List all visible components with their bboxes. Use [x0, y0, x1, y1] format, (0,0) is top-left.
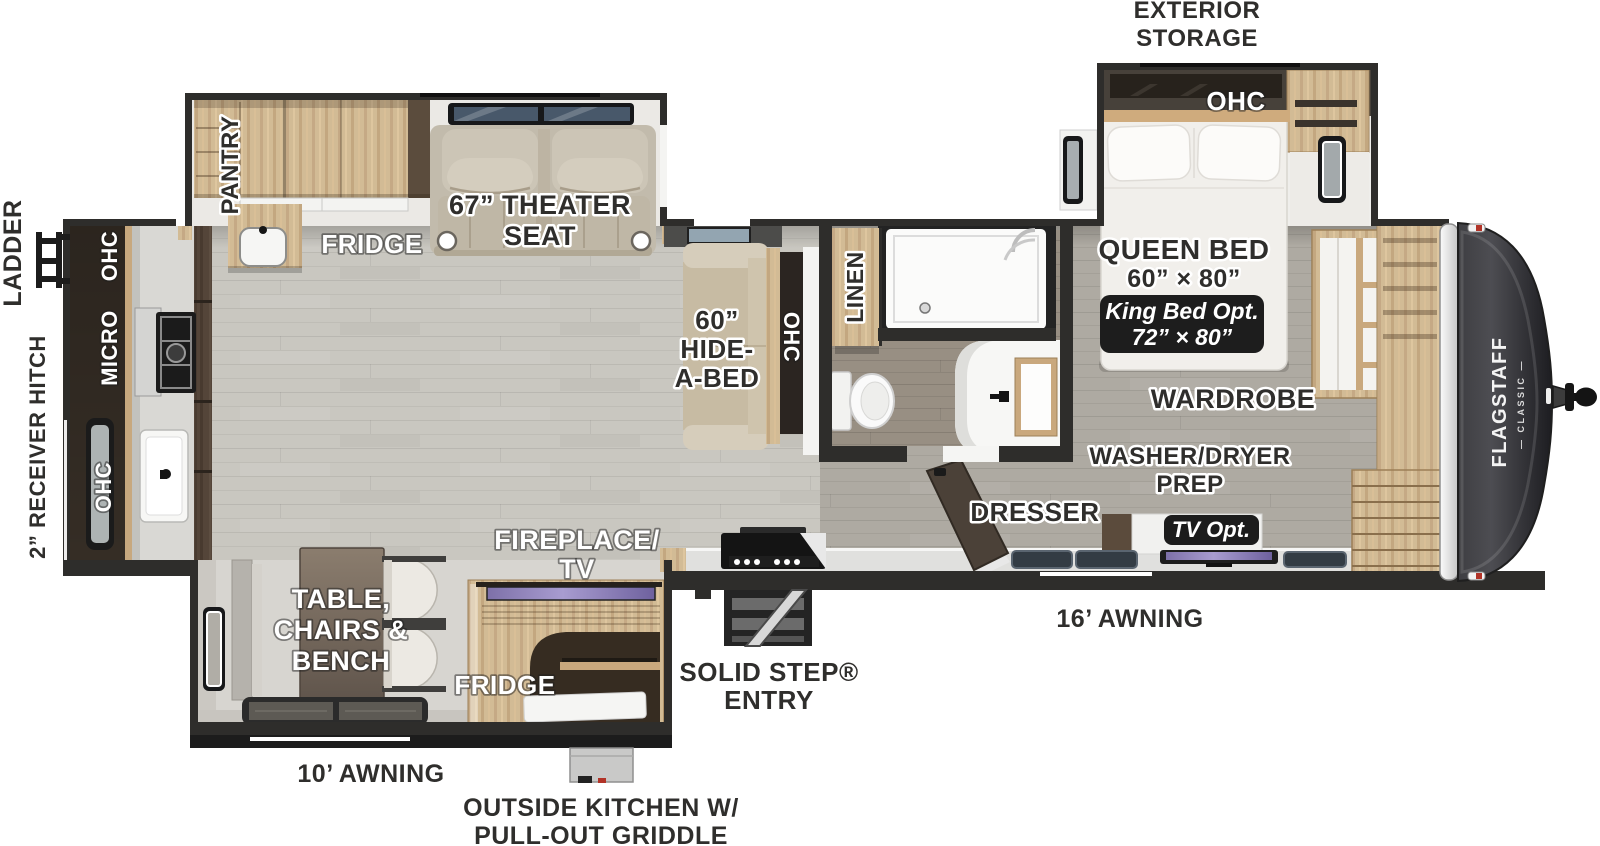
svg-text:TV: TV [559, 554, 595, 584]
svg-text:WASHER/DRYER: WASHER/DRYER [1089, 443, 1290, 470]
svg-text:King Bed Opt.: King Bed Opt. [1105, 298, 1258, 324]
svg-text:SOLID STEP®: SOLID STEP® [679, 657, 858, 687]
svg-text:STORAGE: STORAGE [1136, 25, 1258, 52]
svg-text:TV Opt.: TV Opt. [1172, 517, 1250, 542]
svg-text:QUEEN BED: QUEEN BED [1099, 234, 1270, 265]
svg-text:WARDROBE: WARDROBE [1151, 384, 1316, 414]
svg-text:FRIDGE: FRIDGE [454, 670, 555, 700]
svg-text:OHC: OHC [1206, 86, 1265, 116]
svg-text:TABLE,: TABLE, [292, 584, 391, 614]
svg-text:FLAGSTAFF: FLAGSTAFF [1489, 337, 1511, 468]
svg-text:OHC: OHC [97, 231, 122, 281]
svg-text:LADDER: LADDER [0, 199, 27, 306]
svg-text:16’ AWNING: 16’ AWNING [1056, 605, 1203, 633]
svg-text:CHAIRS &: CHAIRS & [274, 615, 409, 645]
svg-text:— CLASSIC —: — CLASSIC — [1516, 359, 1526, 449]
svg-text:FIREPLACE/: FIREPLACE/ [494, 525, 660, 555]
svg-text:MICRO: MICRO [97, 310, 122, 386]
svg-text:SEAT: SEAT [504, 221, 576, 251]
svg-text:OHC: OHC [91, 462, 116, 512]
svg-text:LINEN: LINEN [842, 251, 868, 323]
svg-text:OUTSIDE KITCHEN W/: OUTSIDE KITCHEN W/ [463, 794, 739, 822]
svg-text:OHC: OHC [779, 312, 804, 362]
svg-text:PREP: PREP [1156, 471, 1223, 498]
svg-text:DRESSER: DRESSER [970, 497, 1099, 527]
svg-text:10’ AWNING: 10’ AWNING [297, 760, 444, 788]
svg-text:60” × 80”: 60” × 80” [1127, 265, 1241, 293]
svg-text:PULL-OUT GRIDDLE: PULL-OUT GRIDDLE [474, 822, 728, 846]
svg-text:67” THEATER: 67” THEATER [449, 190, 631, 220]
svg-text:A-BED: A-BED [675, 363, 760, 393]
svg-text:FRIDGE: FRIDGE [321, 229, 422, 259]
svg-text:BENCH: BENCH [292, 646, 391, 676]
svg-text:HIDE-: HIDE- [680, 334, 753, 364]
svg-text:60”: 60” [695, 305, 738, 335]
svg-text:ENTRY: ENTRY [724, 685, 814, 715]
svg-text:PANTRY: PANTRY [217, 116, 244, 215]
svg-text:EXTERIOR: EXTERIOR [1134, 0, 1261, 24]
svg-text:72” × 80”: 72” × 80” [1132, 324, 1233, 350]
svg-text:2” RECEIVER HITCH: 2” RECEIVER HITCH [25, 335, 50, 559]
